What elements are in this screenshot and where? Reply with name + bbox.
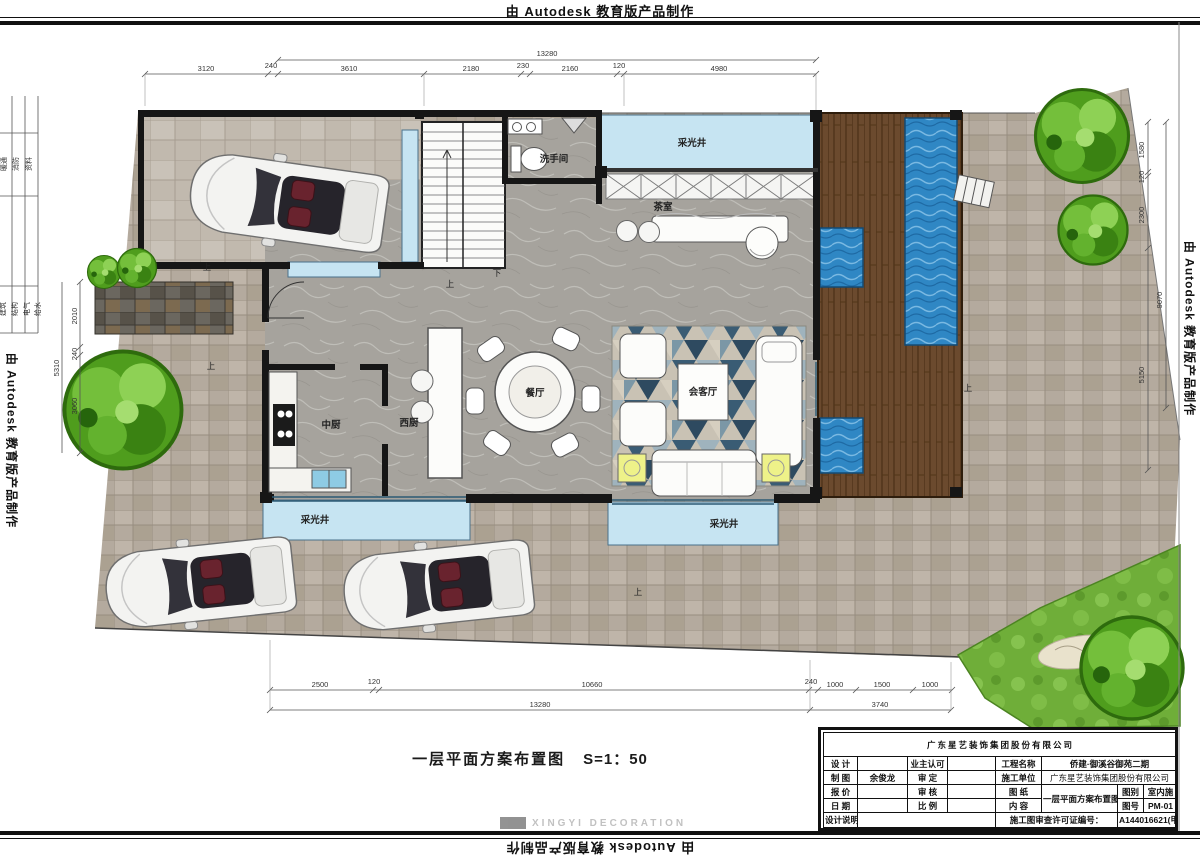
xingyi-logo-text: XINGYI DECORATION	[532, 818, 686, 829]
field-drawing-type-value: 室内施	[1144, 785, 1178, 799]
tree	[1081, 617, 1183, 719]
room-label-light-well-top: 采光井	[677, 137, 707, 149]
field-drawing-type-label: 图别	[1118, 785, 1144, 799]
plan-caption-title: 一层平面方案布置图	[412, 751, 565, 768]
svg-text:1000: 1000	[827, 680, 844, 689]
field-approval-label: 审 定	[908, 771, 948, 785]
field-owner-approval-label: 业主认可	[908, 757, 948, 771]
field-date-value[interactable]	[858, 799, 908, 813]
plan-caption: 一层平面方案布置图S=1：50	[360, 748, 700, 769]
field-scale-label: 比 例	[908, 799, 948, 813]
bush	[118, 249, 157, 288]
svg-text:2160: 2160	[562, 64, 579, 73]
pool-small-bottom	[820, 418, 863, 473]
field-quotation-label: 报 价	[824, 785, 858, 799]
up-marker: 上	[446, 279, 455, 289]
bush	[88, 256, 121, 289]
field-design-notes-value[interactable]	[858, 813, 996, 828]
svg-text:240: 240	[70, 348, 79, 361]
field-drawing-no-label: 图号	[1118, 799, 1144, 813]
svg-text:电气: 电气	[22, 302, 31, 316]
room-label-light-well-bl: 采光井	[300, 514, 330, 526]
armchair	[620, 334, 666, 378]
svg-text:230: 230	[517, 61, 530, 70]
stove	[273, 404, 295, 446]
glass-slot-stair	[402, 130, 418, 262]
field-project-name-label: 工程名称	[996, 757, 1042, 771]
svg-text:建筑: 建筑	[0, 302, 7, 316]
pool-small-top	[820, 228, 863, 287]
field-review-value[interactable]	[948, 785, 996, 799]
svg-text:240: 240	[805, 677, 818, 686]
svg-text:1500: 1500	[874, 680, 891, 689]
dim-left-overall: 5310	[52, 360, 61, 377]
field-drawing-content-value: 一层平面方案布置图	[1042, 785, 1118, 813]
field-construction-unit-label: 施工单位	[996, 771, 1042, 785]
toilet-tank	[511, 146, 521, 172]
field-drawing-no-value: PM-01	[1144, 799, 1178, 813]
field-owner-approval-value[interactable]	[948, 757, 996, 771]
pool-main	[905, 118, 957, 345]
svg-text:资料: 资料	[24, 157, 33, 171]
plan-caption-scale: S=1：50	[583, 751, 648, 768]
svg-text:4980: 4980	[711, 64, 728, 73]
field-drawing-label: 图 纸	[996, 785, 1042, 799]
tree	[1036, 90, 1129, 183]
company-name: 广东星艺装饰集团股份有限公司	[824, 733, 1178, 757]
room-label-washroom: 洗手间	[540, 153, 569, 165]
svg-text:9070: 9070	[1155, 292, 1164, 309]
svg-text:10660: 10660	[582, 680, 603, 689]
up-marker: 上	[964, 383, 973, 393]
chaise	[756, 336, 802, 466]
autodesk-watermark-top: 由 Autodesk 教育版产品制作	[0, 1, 1200, 20]
xingyi-brand-watermark: XINGYI DECORATION	[500, 817, 720, 829]
autodesk-watermark-right: 由 Autodesk 教育版产品制作	[1182, 229, 1199, 429]
field-quotation-value[interactable]	[858, 785, 908, 799]
svg-text:240: 240	[265, 61, 278, 70]
room-label-light-well-br: 采光井	[709, 518, 739, 530]
side-table	[618, 454, 646, 482]
armchair	[620, 402, 666, 446]
field-content-label: 内 容	[996, 799, 1042, 813]
up-marker: 上	[207, 361, 216, 371]
svg-text:暖通: 暖通	[0, 157, 8, 171]
field-drafting-value: 余俊龙	[858, 771, 908, 785]
glass-window-garage	[288, 262, 380, 277]
field-design-notes-label: 设计说明	[824, 813, 858, 828]
room-label-chinese-kitchen: 中厨	[321, 419, 341, 431]
side-table	[762, 454, 790, 482]
field-license-value: A144016621(甲级)	[1118, 813, 1178, 828]
drawing-sheet: 采光井 采光井 采光井 茶室 洗手间 餐厅 中厨 西厨 会客厅 上 上 上 下 …	[0, 0, 1200, 859]
svg-text:3120: 3120	[198, 64, 215, 73]
field-scale-value[interactable]	[948, 799, 996, 813]
svg-text:5150: 5150	[1137, 367, 1146, 384]
field-license-label: 施工图审查许可证编号：	[996, 813, 1118, 828]
tree	[1059, 196, 1128, 265]
up-marker: 上	[634, 587, 643, 597]
xingyi-logo-block	[500, 817, 526, 829]
dim-bottom-overall: 13280	[530, 700, 551, 709]
slate-path	[95, 282, 233, 334]
field-date-label: 日 期	[824, 799, 858, 813]
room-label-western-kitchen: 西厨	[399, 418, 419, 429]
svg-text:1580: 1580	[1137, 142, 1146, 159]
field-design-label: 设 计	[824, 757, 858, 771]
staircase	[422, 122, 505, 268]
sofa	[652, 450, 756, 496]
svg-text:3060: 3060	[70, 398, 79, 415]
room-label-living: 会客厅	[689, 386, 718, 398]
svg-text:3740: 3740	[872, 700, 889, 709]
svg-text:120: 120	[1137, 171, 1146, 184]
field-approval-value[interactable]	[948, 771, 996, 785]
living-room	[612, 326, 806, 496]
dim-top-overall: 13280	[537, 49, 558, 58]
room-label-tea: 茶室	[652, 201, 673, 213]
light-well-bottom-right	[608, 502, 778, 545]
autodesk-watermark-left: 由 Autodesk 教育版产品制作	[4, 341, 21, 541]
svg-text:2500: 2500	[312, 680, 329, 689]
svg-text:2300: 2300	[1137, 207, 1146, 224]
down-marker: 下	[493, 268, 502, 278]
field-design-value[interactable]	[858, 757, 908, 771]
field-drafting-label: 制 图	[824, 771, 858, 785]
autodesk-watermark-bottom: 由 Autodesk 教育版产品制作	[0, 839, 1200, 858]
field-project-name-value: 侨建·御溪谷御苑二期	[1042, 757, 1178, 771]
svg-text:2180: 2180	[463, 64, 480, 73]
svg-text:消防: 消防	[11, 157, 20, 171]
ball-chair	[746, 227, 778, 259]
light-well-bottom-left	[263, 500, 470, 540]
field-review-label: 审 核	[908, 785, 948, 799]
svg-text:2010: 2010	[70, 308, 79, 325]
svg-text:120: 120	[368, 677, 381, 686]
svg-text:3610: 3610	[341, 64, 358, 73]
svg-text:1000: 1000	[922, 680, 939, 689]
lattice-screen	[606, 174, 816, 199]
svg-text:120: 120	[613, 61, 626, 70]
light-well-top	[600, 115, 816, 170]
signoff-strip: 暖通 消防 资料 建筑 结构 电气 给水	[0, 96, 42, 333]
title-block: 广东星艺装饰集团股份有限公司 设 计 业主认可 工程名称 侨建·御溪谷御苑二期 …	[818, 727, 1178, 831]
up-marker: 上	[203, 262, 212, 272]
svg-text:结构: 结构	[10, 302, 19, 316]
field-construction-unit-value: 广东星艺装饰集团股份有限公司	[1042, 771, 1178, 785]
room-label-dining: 餐厅	[524, 387, 545, 399]
svg-text:给水: 给水	[33, 302, 42, 316]
